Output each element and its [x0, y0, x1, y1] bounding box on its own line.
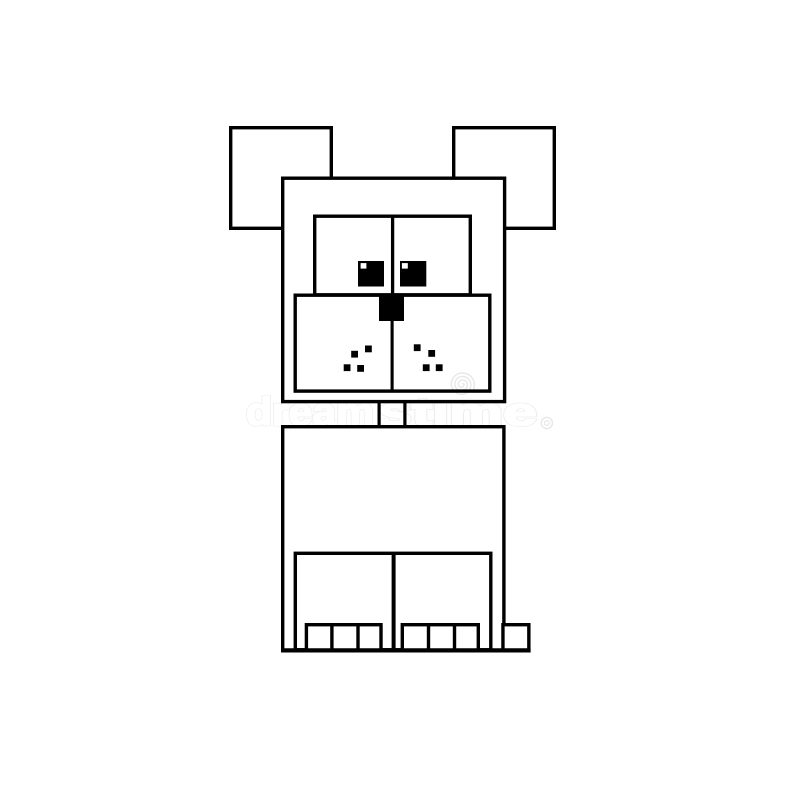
svg-text:stıme: stıme — [378, 391, 537, 434]
svg-text:dream: dream — [246, 391, 374, 434]
